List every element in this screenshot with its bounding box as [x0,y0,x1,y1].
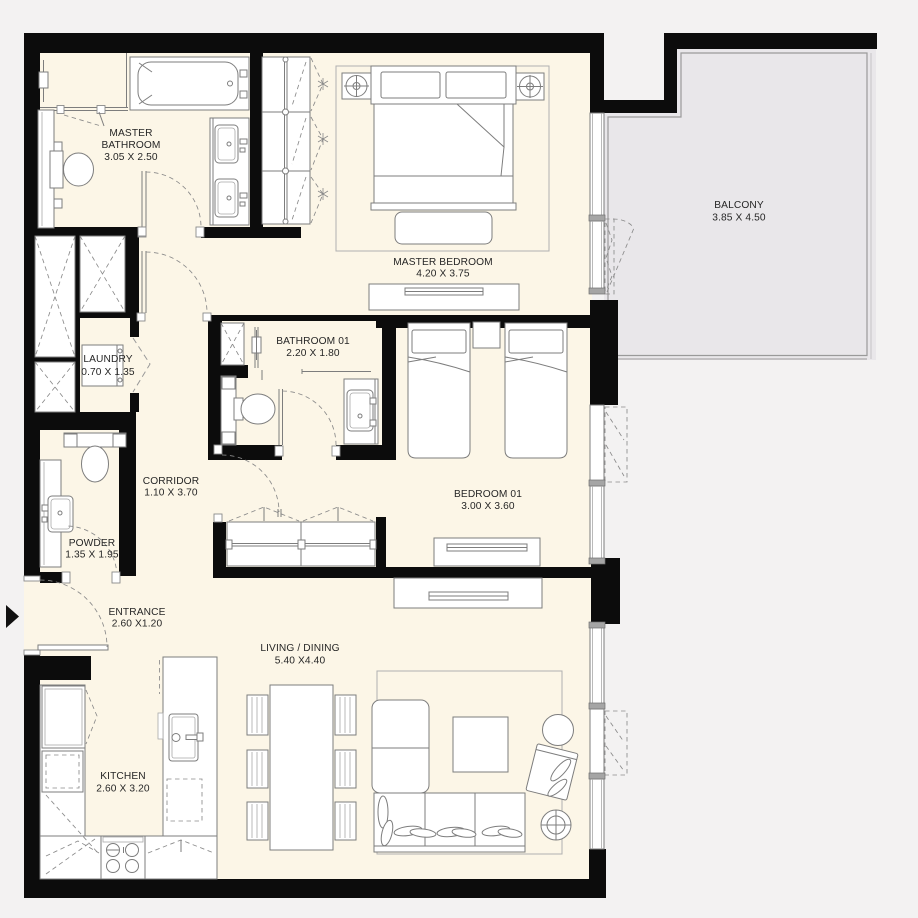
svg-text:ENTRANCE: ENTRANCE [109,607,166,618]
svg-text:3.05 X 2.50: 3.05 X 2.50 [104,152,158,163]
svg-text:0.70 X 1.35: 0.70 X 1.35 [81,367,135,378]
svg-text:4.20 X 3.75: 4.20 X 3.75 [416,269,470,280]
svg-text:1.35 X 1.95: 1.35 X 1.95 [65,550,119,561]
svg-text:LIVING / DINING: LIVING / DINING [260,643,339,654]
svg-text:1.10 X 3.70: 1.10 X 3.70 [144,488,198,499]
svg-text:CORRIDOR: CORRIDOR [143,476,199,487]
svg-text:LAUNDRY: LAUNDRY [83,354,132,365]
svg-text:KITCHEN: KITCHEN [100,771,146,782]
svg-text:POWDER: POWDER [69,538,116,549]
svg-text:3.00 X 3.60: 3.00 X 3.60 [461,501,515,512]
svg-text:2.60 X1.20: 2.60 X1.20 [112,619,163,630]
svg-text:BALCONY: BALCONY [714,200,764,211]
svg-text:3.85 X 4.50: 3.85 X 4.50 [712,213,766,224]
svg-text:5.40 X4.40: 5.40 X4.40 [275,656,326,667]
svg-text:BATHROOM: BATHROOM [101,140,160,151]
svg-text:BATHROOM 01: BATHROOM 01 [276,336,350,347]
svg-text:BEDROOM 01: BEDROOM 01 [454,489,522,500]
svg-text:2.60 X 3.20: 2.60 X 3.20 [96,784,150,795]
svg-text:2.20 X 1.80: 2.20 X 1.80 [286,348,340,359]
svg-text:MASTER: MASTER [109,128,152,139]
svg-text:MASTER BEDROOM: MASTER BEDROOM [393,257,493,268]
